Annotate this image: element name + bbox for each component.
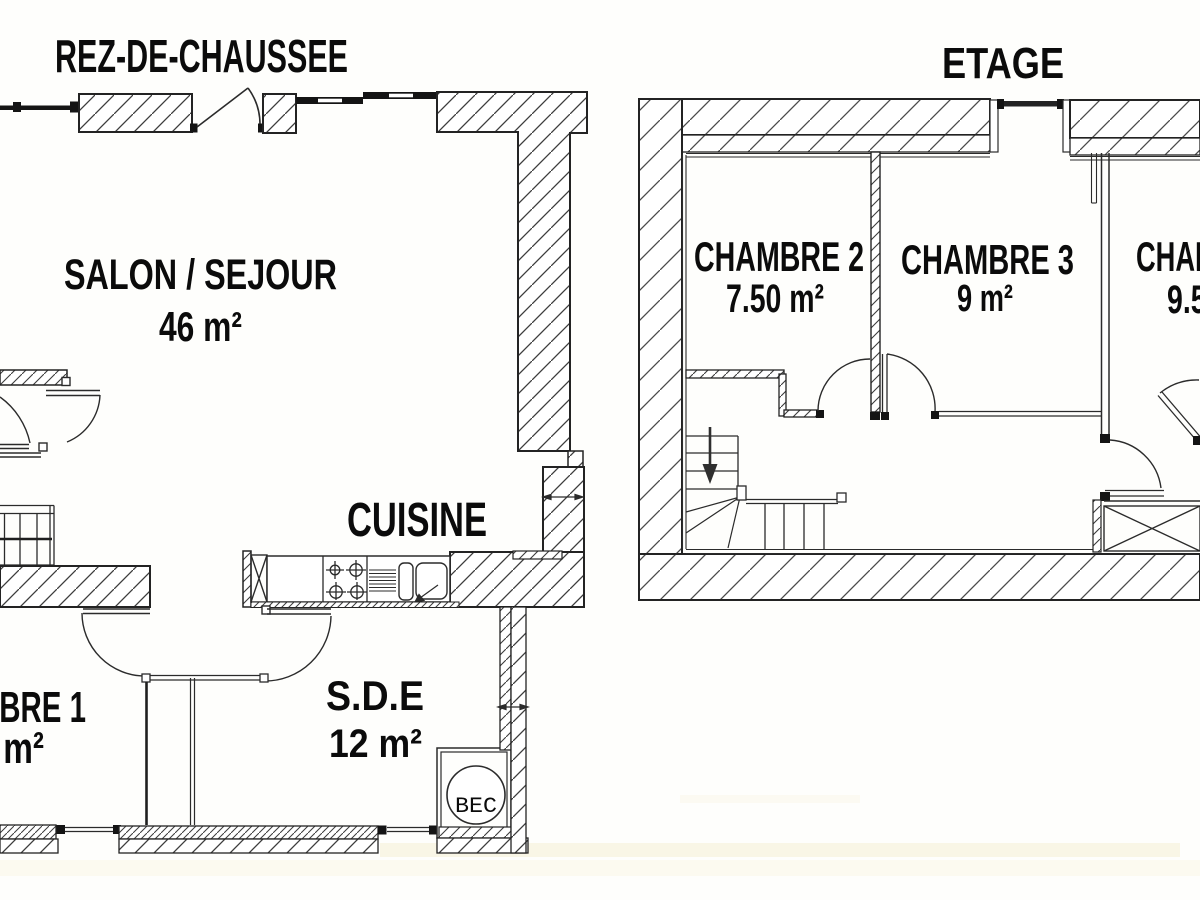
svg-text:CHAMBRE 4: CHAMBRE 4 (1136, 233, 1200, 280)
svg-text:7.50 m²: 7.50 m² (726, 277, 824, 321)
svg-text:9.50 m²: 9.50 m² (0, 724, 44, 773)
svg-text:SALON / SEJOUR: SALON / SEJOUR (64, 251, 337, 299)
svg-text:12 m²: 12 m² (329, 722, 422, 766)
svg-text:9.50 m²: 9.50 m² (1167, 278, 1200, 322)
svg-text:CHAMBRE 3: CHAMBRE 3 (901, 236, 1074, 283)
svg-text:BEC: BEC (455, 794, 497, 819)
svg-text:9 m²: 9 m² (957, 278, 1013, 320)
svg-text:46 m²: 46 m² (159, 303, 242, 350)
svg-text:REZ-DE-CHAUSSEE: REZ-DE-CHAUSSEE (55, 30, 348, 82)
svg-text:CUISINE: CUISINE (347, 494, 487, 547)
svg-text:CHAMBRE 2: CHAMBRE 2 (694, 233, 864, 280)
svg-text:S.D.E: S.D.E (326, 672, 424, 719)
svg-text:ETAGE: ETAGE (942, 39, 1064, 88)
